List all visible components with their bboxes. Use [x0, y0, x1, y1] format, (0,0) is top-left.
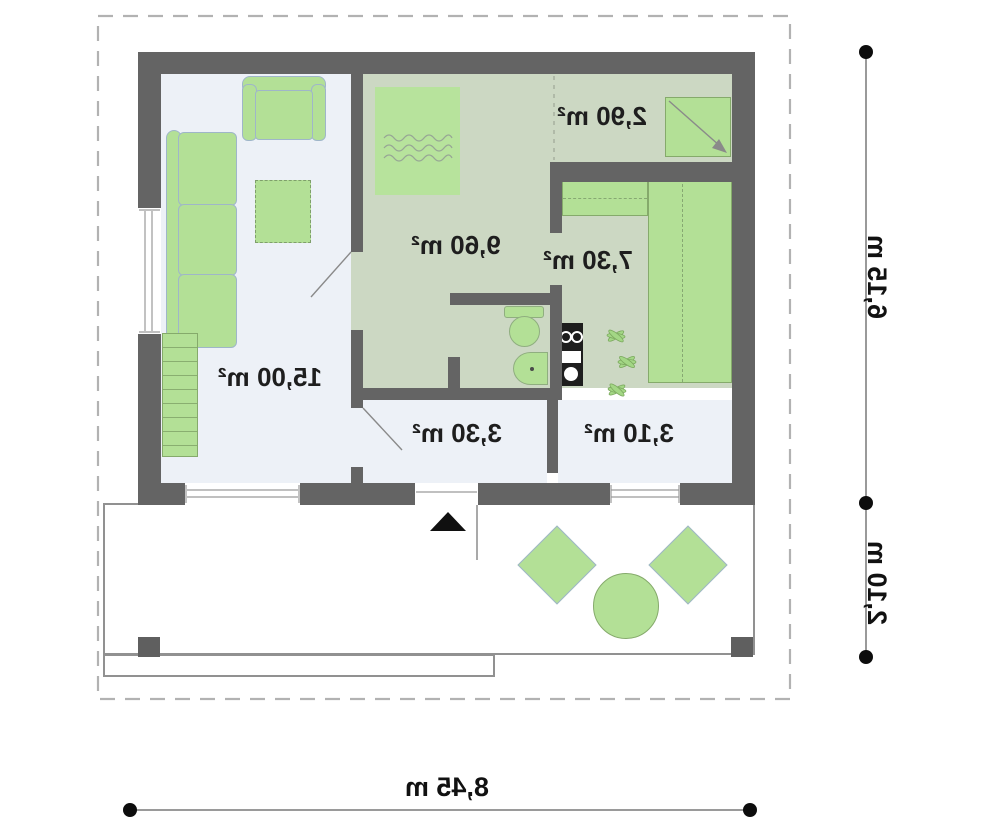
wall-left-lower	[138, 334, 161, 505]
terrace	[103, 503, 755, 655]
partition-wc-stub	[448, 357, 460, 388]
partition-bedroom-lower	[550, 285, 562, 388]
rug	[375, 87, 460, 195]
partition-living-stub	[351, 467, 363, 483]
room-label-living: 15,00 m²	[160, 357, 380, 397]
wall-top	[138, 52, 755, 74]
room-label-kitchen: 7,30 m²	[478, 240, 698, 280]
terrace-post-left	[138, 637, 160, 657]
kitchen-sink	[559, 363, 583, 386]
sofa-cushion	[178, 132, 237, 206]
partition-hall-horizontal	[351, 388, 562, 400]
wall-left-upper	[138, 74, 161, 208]
armchair	[242, 76, 326, 142]
partition-wc-top	[450, 293, 550, 305]
entrance-arrow	[430, 512, 466, 531]
dimension-label-right-upper: 6,15 m	[857, 177, 897, 377]
window-bottom-living	[185, 483, 300, 505]
armchair-arm-right	[311, 84, 326, 141]
dimension-label-bottom: 8,45 m	[347, 767, 547, 807]
coffee-table	[255, 180, 311, 243]
stove-burner	[571, 331, 583, 343]
window-bottom-right	[610, 483, 680, 505]
terrace-divider-line	[476, 505, 478, 560]
wall-bottom-seg	[300, 483, 415, 505]
sofa-cushion	[178, 204, 237, 276]
terrace-table	[593, 573, 659, 639]
room-label-bathroom: 3,10 m²	[519, 413, 739, 453]
stove	[559, 323, 583, 351]
floor-plan-canvas: 15,00 m² 9,60 m² 2,90 m² 7,30 m² 3,30 m²…	[0, 0, 1000, 823]
washbasin-drain	[530, 367, 534, 371]
kitchen-sink-basin	[564, 367, 578, 381]
dimension-dot	[859, 45, 873, 59]
wall-bottom-seg	[138, 483, 185, 505]
wall-bottom-seg	[680, 483, 755, 505]
partition-wardrobe-horizontal	[550, 162, 755, 182]
dimension-dot	[123, 803, 137, 817]
toilet-bowl	[509, 316, 540, 347]
terrace-step	[103, 654, 495, 677]
terrace-post-right	[731, 637, 753, 657]
desk-unit-divider	[563, 198, 647, 199]
sofa	[166, 130, 237, 350]
dimension-line-bottom	[130, 809, 750, 811]
window-left	[138, 208, 161, 334]
room-label-wardrobe: 2,90 m²	[492, 96, 712, 136]
dimension-dot	[743, 803, 757, 817]
kitchen-counter	[559, 351, 583, 363]
entrance-door-opening	[415, 483, 478, 505]
armchair-seat	[255, 90, 313, 140]
dimension-label-right-lower: 2,10 m	[857, 483, 897, 683]
wall-bottom-seg	[478, 483, 610, 505]
